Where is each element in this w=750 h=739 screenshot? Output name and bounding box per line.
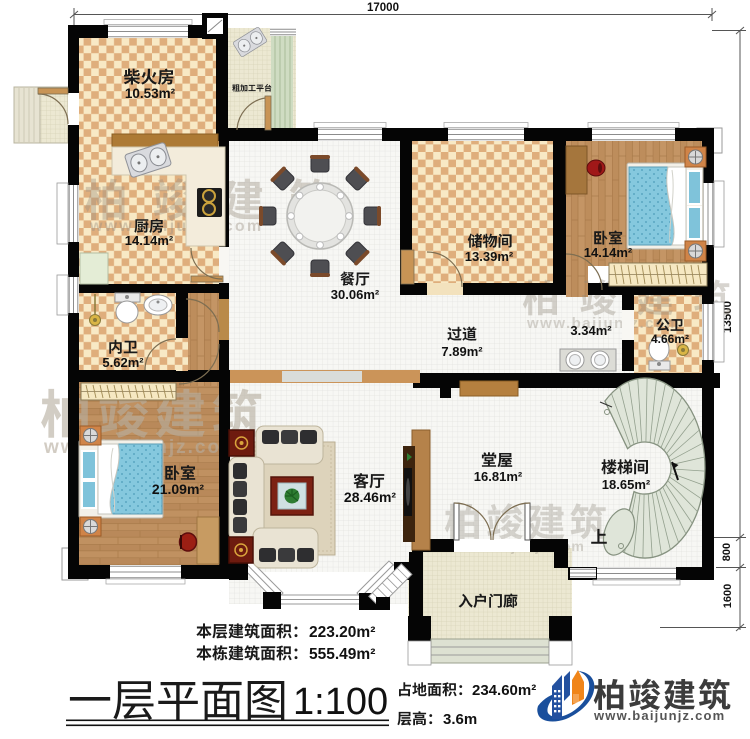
svg-text:17000: 17000 (367, 2, 399, 14)
svg-text:10.53m²: 10.53m² (125, 86, 176, 101)
svg-text:www.baijunjz.com: www.baijunjz.com (89, 218, 263, 235)
svg-text:16.81m²: 16.81m² (474, 469, 523, 484)
svg-text:14.14m²: 14.14m² (584, 245, 633, 260)
svg-text:www.baijunjz.com: www.baijunjz.com (593, 708, 725, 723)
svg-text:30.06m²: 30.06m² (331, 287, 380, 302)
svg-text:13.39m²: 13.39m² (465, 249, 514, 264)
svg-text:234.60m²: 234.60m² (472, 682, 536, 699)
svg-text:5.62m²: 5.62m² (102, 355, 144, 370)
svg-text:1600: 1600 (722, 584, 734, 608)
svg-text:18.65m²: 18.65m² (602, 477, 651, 492)
svg-text:28.46m²: 28.46m² (344, 489, 396, 505)
svg-text:3.6m: 3.6m (443, 711, 477, 728)
svg-text:21.09m²: 21.09m² (152, 481, 204, 497)
svg-text:14.14m²: 14.14m² (125, 233, 174, 248)
svg-text:3.34m²: 3.34m² (570, 323, 612, 338)
svg-text:7.89m²: 7.89m² (441, 344, 483, 359)
svg-text:4.66m²: 4.66m² (651, 332, 689, 346)
svg-text:1:100: 1:100 (293, 681, 388, 723)
svg-text:555.49m²: 555.49m² (309, 646, 375, 663)
svg-text:223.20m²: 223.20m² (309, 624, 375, 641)
svg-text:800: 800 (721, 543, 733, 561)
